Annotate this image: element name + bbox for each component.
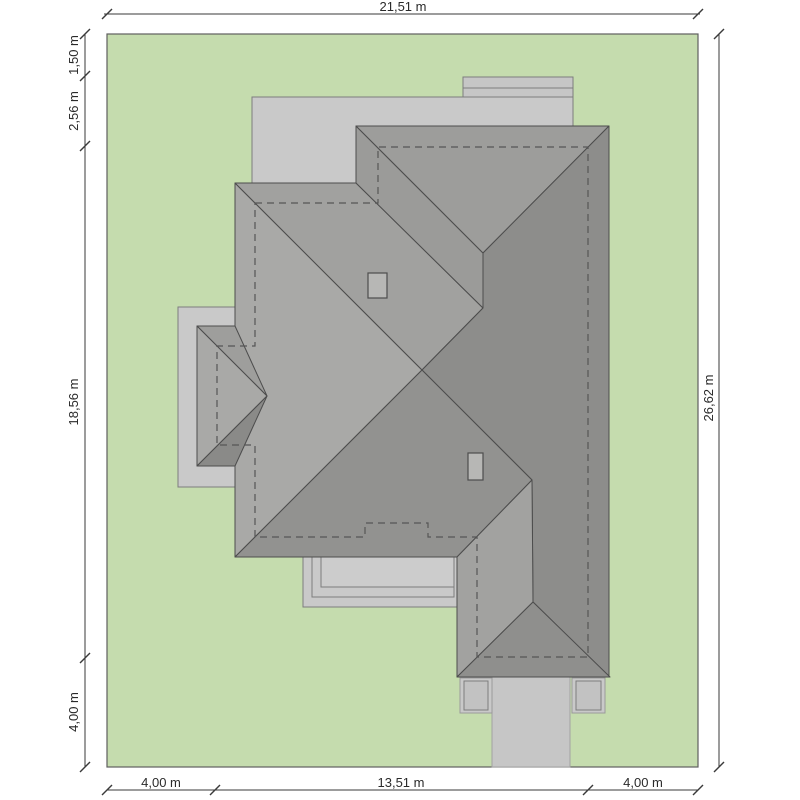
chimney-upper [368,273,387,298]
dim-top-label-0: 21,51 m [380,0,427,14]
dim-left-label-1: 2,56 m [66,91,81,131]
dim-left-label-3: 4,00 m [66,692,81,732]
dim-left-label-2: 18,56 m [66,379,81,426]
dim-bottom-label-0: 4,00 m [141,775,181,790]
site-plan-drawing: 21,51 m4,00 m13,51 m4,00 m1,50 m2,56 m18… [0,0,800,800]
left-pillar-inner [464,681,488,710]
right-pillar-inner [576,681,601,710]
site-plan: 21,51 m4,00 m13,51 m4,00 m1,50 m2,56 m18… [0,0,800,800]
bottom-terrace-inner [321,557,454,587]
driveway [492,677,570,767]
dim-bottom-label-2: 4,00 m [623,775,663,790]
dim-left-label-0: 1,50 m [66,35,81,75]
dim-right-label-0: 26,62 m [701,375,716,422]
top-step [463,77,573,97]
chimney-lower [468,453,483,480]
dim-bottom-label-1: 13,51 m [378,775,425,790]
